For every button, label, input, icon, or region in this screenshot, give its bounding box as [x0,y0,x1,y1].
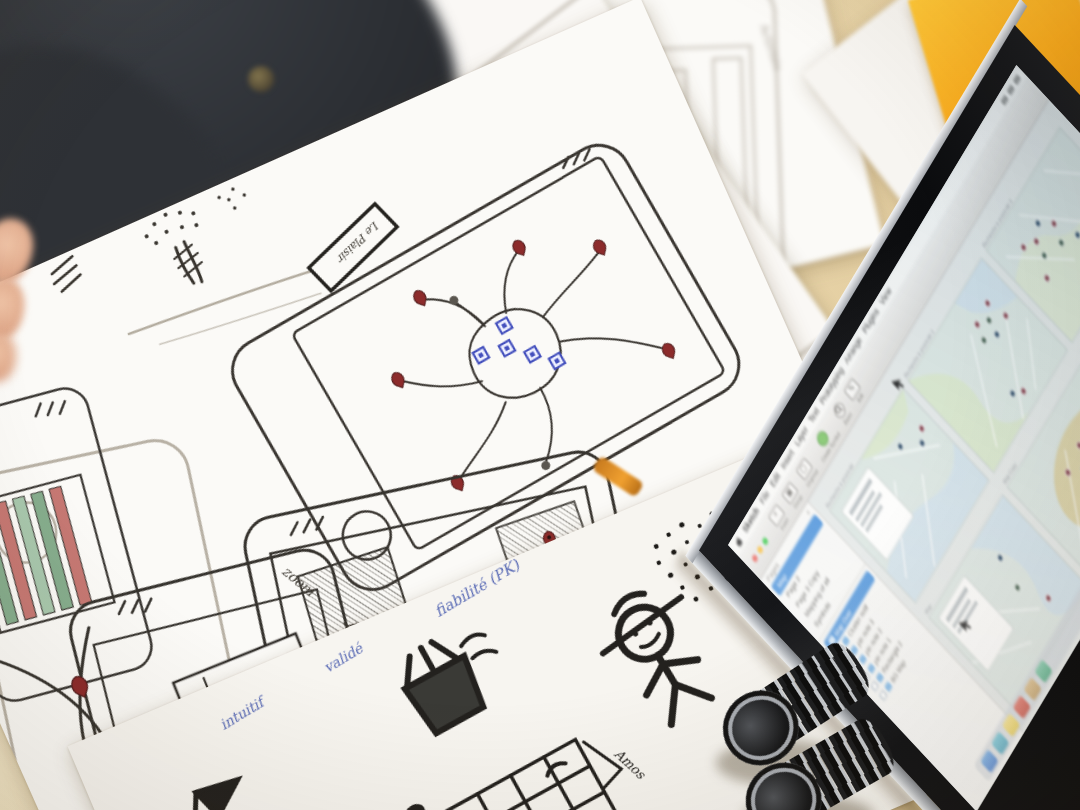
jacket-button [248,66,274,92]
layer-icon [884,681,893,692]
framed-label-sketch: Le Plaisir [309,204,397,291]
desk-photo: Activités [0,0,1080,810]
minimize-window-icon[interactable] [756,545,763,555]
toolbar-insert[interactable]: + Insert [768,504,790,533]
basket-icon [391,617,516,736]
close-window-icon[interactable] [751,554,758,564]
add-page-button[interactable]: + [805,509,812,518]
flag-icon [152,770,271,810]
dock-icon-notes[interactable] [1002,713,1020,737]
activities-label: Activités [757,22,785,73]
map-marker-squares [466,303,565,400]
dock-icon-folder[interactable] [1023,677,1041,701]
toolbar-zoom[interactable]: Zoom [832,400,853,426]
wifi-icon [1000,94,1008,105]
toolbar-edit[interactable]: ✎ Edit [844,377,866,406]
dock-icon-mail[interactable] [991,731,1009,755]
dock-icon-app-store[interactable] [1012,695,1030,719]
svg-text:intuitif: intuitif [217,692,270,732]
clock-icon [1012,74,1020,85]
dock-icon-maps[interactable] [1034,659,1052,683]
phone-sketch-list [0,383,157,706]
battery-icon [1006,84,1014,95]
toolbar-ungroup[interactable]: ▢ Ungroup [795,456,819,488]
toolbar-group[interactable]: ▣ Group [781,481,803,510]
svg-text:validé: validé [321,639,367,675]
window-controls[interactable] [751,536,769,563]
dock-icon-finder[interactable] [980,749,998,773]
zoom-window-icon[interactable] [762,536,769,546]
